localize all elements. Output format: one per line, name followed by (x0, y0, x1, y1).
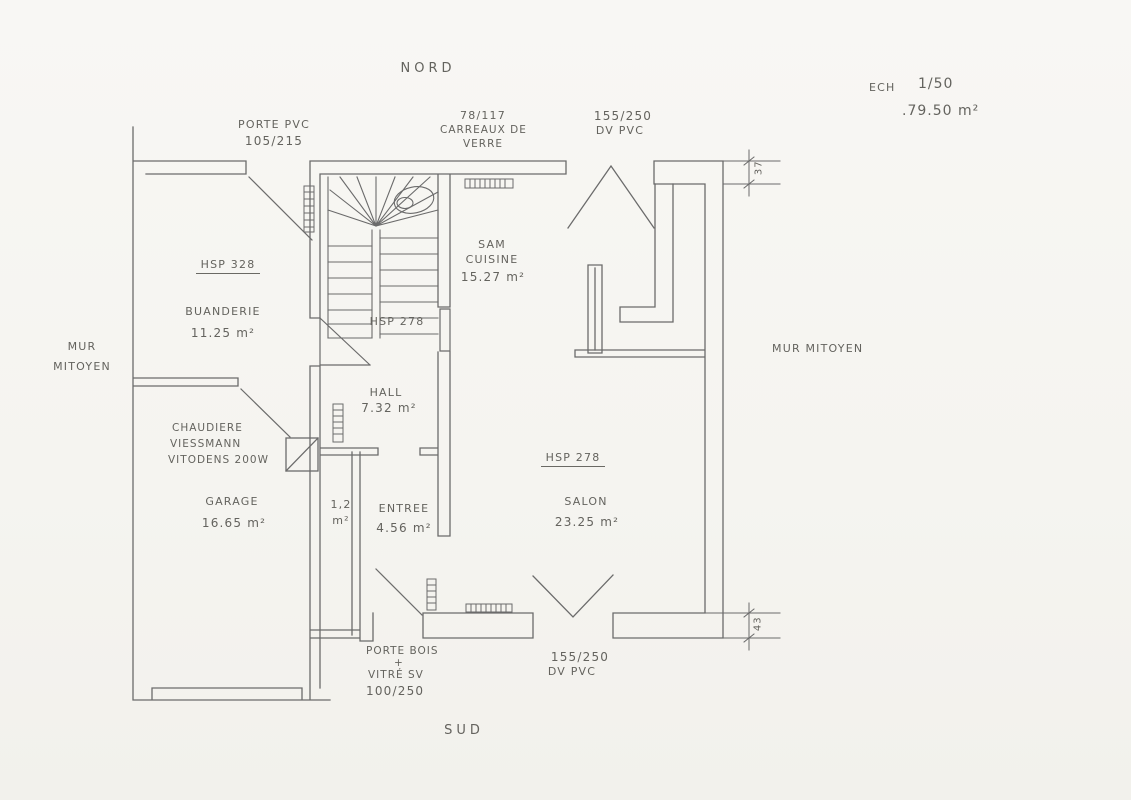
garage-area-label: 16.65 m² (198, 517, 270, 531)
floor-plan-drawing (0, 0, 1131, 800)
porte-bois-label-1: PORTE BOIS (366, 645, 462, 657)
wc-area-label-1: 1,2 (328, 499, 354, 512)
glass-block-window-strip (465, 179, 513, 188)
hall-sam-door-leaf (440, 309, 450, 351)
duct (588, 265, 602, 353)
dimension-43 (705, 603, 780, 650)
glass-block-label-2: CARREAUX DE (440, 124, 526, 136)
scale-prefix: ECH (869, 82, 913, 95)
south-window-swing (533, 575, 613, 617)
staircase (328, 177, 438, 338)
hall-area-label: 7.32 m² (360, 402, 418, 416)
sam-name-label-2: CUISINE (460, 254, 524, 267)
buanderie-hsp-label: HSP 328 (196, 259, 260, 274)
entree-radiator-vertical (427, 579, 436, 610)
porte-pvc-label-1: PORTE PVC (230, 119, 318, 132)
party-wall-left-label-2: MITOYEN (42, 361, 122, 374)
boiler-label-3: VITODENS 200W (168, 454, 298, 466)
entree-radiator-horizontal (466, 604, 512, 612)
porte-bois-label-3: VITRÉ SV (368, 669, 448, 681)
porte-bois-swing (376, 569, 422, 615)
scale-value: 1/50 (918, 76, 978, 92)
salon-name-label: SALON (556, 496, 616, 509)
glass-block-label-1: 78/117 (447, 110, 519, 123)
wc-area-label-2: m² (328, 515, 354, 528)
chimney-block (588, 184, 673, 353)
compass-north-label: NORD (388, 62, 468, 77)
winder-treads (328, 177, 438, 226)
hall-hsp-label: HSP 278 (366, 316, 428, 329)
dimension-37 (723, 150, 780, 196)
garage-name-label: GARAGE (196, 496, 268, 509)
salon-area-label: 23.25 m² (552, 516, 622, 530)
north-window-swing (568, 166, 654, 228)
glass-block-label-3: VERRE (447, 138, 519, 150)
salon-hsp-label: HSP 278 (541, 452, 605, 467)
party-wall-right-label: MUR MITOYEN (772, 343, 892, 356)
compass-south-label: SUD (434, 724, 494, 739)
total-area: .79.50 m² (902, 103, 1012, 119)
south-window-label-1: 155/250 (544, 651, 616, 665)
entree-area-label: 4.56 m² (372, 522, 436, 536)
buanderie-name-label: BUANDERIE (180, 306, 266, 319)
floor-plan-sheet: NORD SUD ECH 1/50 .79.50 m² PORTE PVC 10… (0, 0, 1131, 800)
north-window-label-2: DV PVC (585, 125, 655, 138)
boiler-label-1: CHAUDIERE (172, 422, 272, 434)
stair-wall-glass-strip (304, 186, 314, 232)
party-wall-left-label-1: MUR (52, 341, 112, 354)
porte-bois-label-2: + (394, 657, 414, 669)
hall-radiator-strip (333, 404, 343, 442)
sam-name-label-1: SAM (470, 239, 514, 252)
dimension-43-label: 43 (752, 611, 764, 637)
sam-area-label: 15.27 m² (458, 271, 528, 285)
dimension-37-label: 37 (753, 155, 765, 181)
buanderie-area-label: 11.25 m² (188, 327, 258, 341)
porte-pvc-label-2: 105/215 (230, 135, 318, 149)
north-window-label-1: 155/250 (585, 110, 661, 124)
porte-bois-label-4: 100/250 (366, 685, 446, 699)
south-window-label-2: DV PVC (536, 666, 608, 679)
entree-name-label: ENTREE (372, 503, 436, 516)
window-symbols (533, 166, 654, 617)
boiler-label-2: VIESSMANN (170, 438, 270, 450)
door-swings (241, 177, 450, 615)
hall-name-label: HALL (360, 387, 412, 400)
porte-pvc-swing (249, 177, 312, 240)
